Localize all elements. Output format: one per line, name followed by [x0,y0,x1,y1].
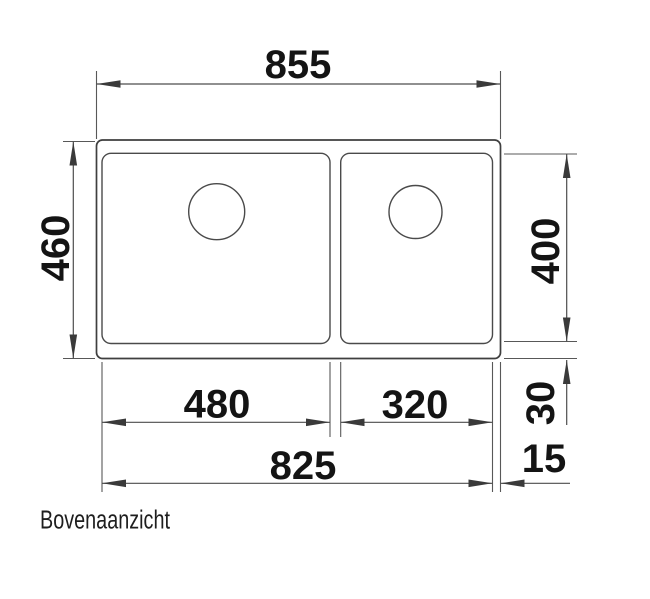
sink-right-bowl [341,153,493,343]
dimension-bottom-rim: 30 [504,359,577,426]
dimension-left-bowl-width: 480 [102,383,330,427]
view-title: Bovenaanzicht [40,507,170,535]
dim-320-label: 320 [382,383,449,427]
dim-460-label: 460 [34,215,78,282]
dimension-bowls-span: 825 [102,444,493,488]
sink-top-view-drawing: 855 460 400 30 [0,0,650,599]
sink-left-bowl [102,153,330,343]
dim-30-label: 30 [519,381,563,426]
dimension-bowl-depth: 400 [504,154,577,342]
dim-825-label: 825 [270,444,337,488]
dimension-overall-width: 855 [97,43,501,139]
left-drain-hole [189,184,245,240]
dim-15-label: 15 [522,437,567,481]
sink-body [97,140,501,359]
dim-400-label: 400 [524,218,568,285]
sink-outer-edge [97,140,501,359]
dimension-right-bowl-width: 320 [341,383,493,427]
technical-drawing-canvas: 855 460 400 30 [0,0,650,599]
right-drain-hole [389,186,442,239]
dim-855-label: 855 [265,43,332,87]
dim-480-label: 480 [184,383,251,427]
dimension-right-rim: 15 [501,437,571,483]
dimension-overall-depth: 460 [34,142,95,359]
